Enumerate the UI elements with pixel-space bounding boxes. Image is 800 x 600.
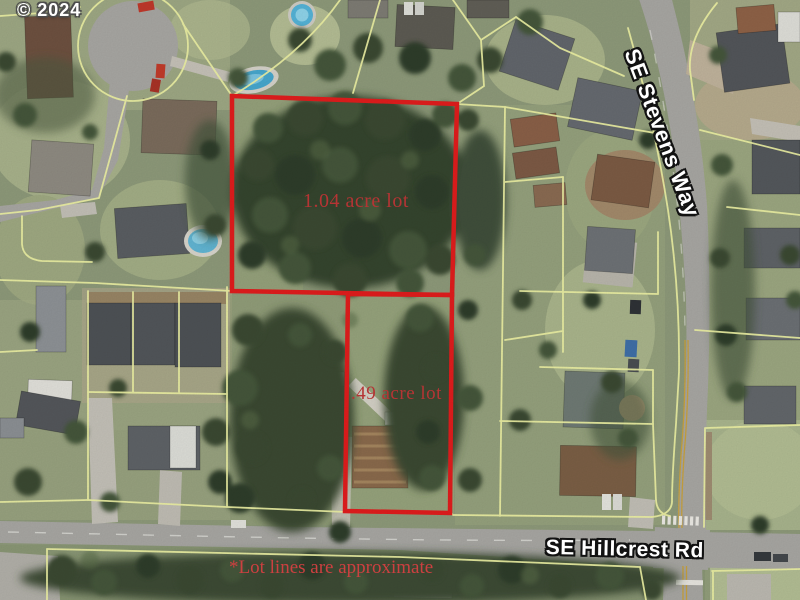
aerial-photo: © 2024 1.04 acre lot .49 acre lot SE Ste… [0, 0, 800, 600]
photo-grain [0, 0, 800, 600]
aerial-photo-canvas [0, 0, 800, 600]
